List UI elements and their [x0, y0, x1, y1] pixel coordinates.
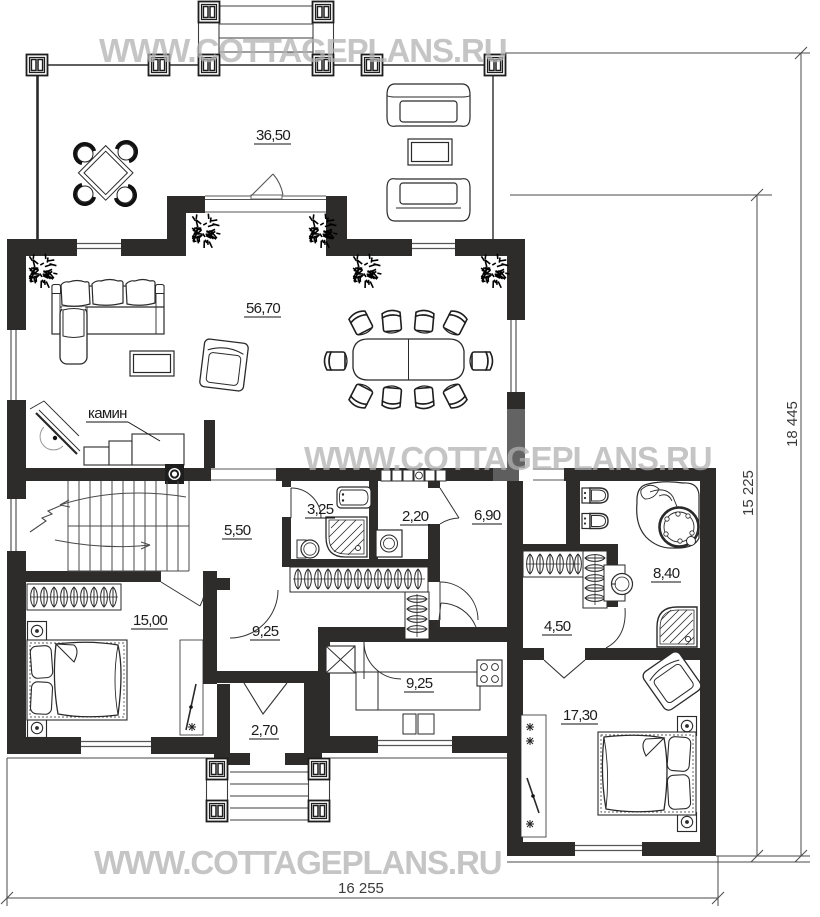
svg-text:8,40: 8,40	[653, 565, 680, 582]
svg-text:4,50: 4,50	[544, 618, 571, 635]
svg-text:17,30: 17,30	[563, 707, 597, 724]
svg-text:2,70: 2,70	[251, 722, 278, 739]
svg-text:WWW.COTTAGEPLANS.RU: WWW.COTTAGEPLANS.RU	[94, 844, 501, 881]
svg-text:15 225: 15 225	[740, 470, 757, 516]
svg-text:3,25: 3,25	[307, 501, 334, 518]
svg-text:16 255: 16 255	[338, 880, 384, 897]
svg-text:18 445: 18 445	[784, 401, 801, 447]
svg-text:WWW.COTTAGEPLANS.RU: WWW.COTTAGEPLANS.RU	[99, 32, 506, 69]
svg-text:15,00: 15,00	[133, 612, 167, 629]
svg-text:2,20: 2,20	[402, 508, 429, 525]
svg-text:9,25: 9,25	[406, 675, 433, 692]
svg-text:9,25: 9,25	[252, 623, 279, 640]
svg-text:камин: камин	[88, 405, 127, 422]
svg-text:WWW.COTTAGEPLANS.RU: WWW.COTTAGEPLANS.RU	[304, 440, 711, 477]
svg-text:6,90: 6,90	[474, 507, 501, 524]
svg-text:5,50: 5,50	[224, 522, 251, 539]
svg-text:56,70: 56,70	[246, 300, 280, 317]
svg-text:36,50: 36,50	[256, 127, 290, 144]
